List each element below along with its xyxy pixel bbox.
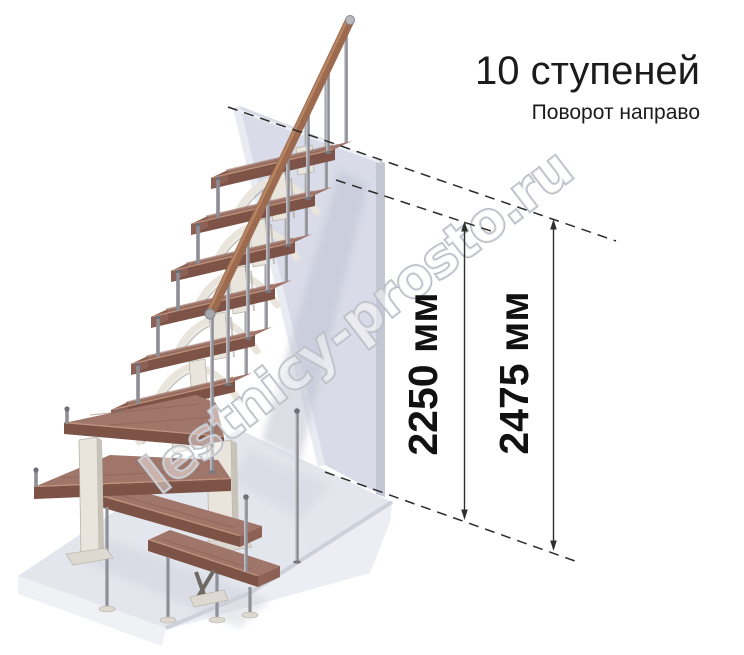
staircase-diagram: lestnicy-prosto.ru 2250 мм 2475 мм 10 ст… [0,0,744,655]
dimension-2475: 2475 мм [491,219,557,551]
dimension-label-2250: 2250 мм [400,292,446,455]
staircase-illustration: lestnicy-prosto.ru 2250 мм 2475 мм [0,0,744,655]
dimension-label-2475: 2475 мм [491,291,537,454]
handrail-top-cap [346,16,355,25]
page-title: 10 ступеней [475,50,700,92]
page-subtitle: Поворот направо [532,101,700,125]
handrail-end-cap [205,309,215,319]
